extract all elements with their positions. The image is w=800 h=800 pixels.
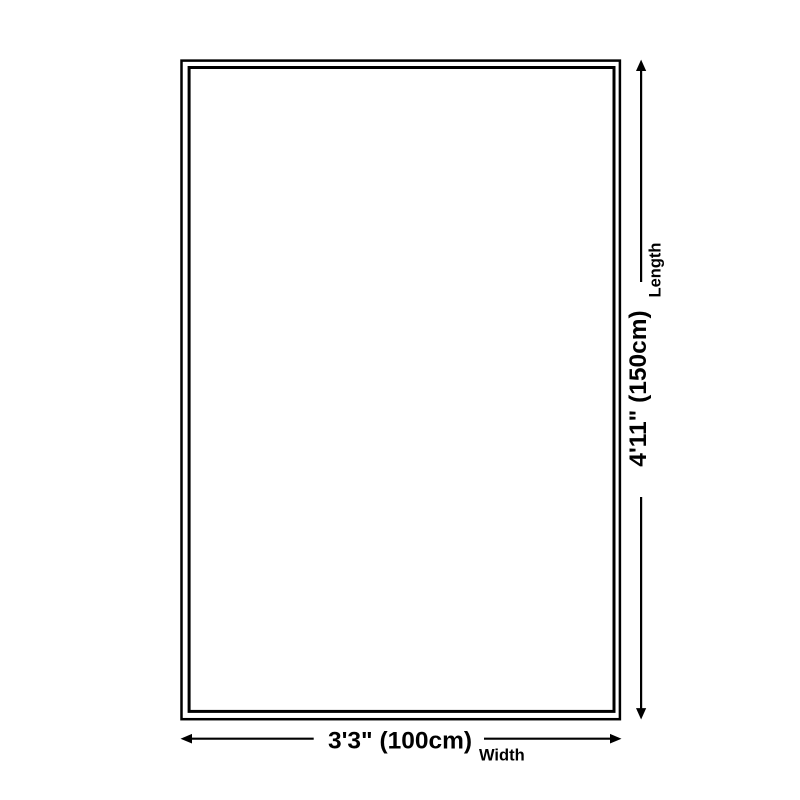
svg-text:Width: Width (479, 746, 525, 764)
svg-text:Length: Length (647, 243, 665, 298)
svg-text:3'3" (100cm): 3'3" (100cm) (328, 727, 472, 754)
svg-text:4'11" (150cm): 4'11" (150cm) (625, 310, 652, 466)
